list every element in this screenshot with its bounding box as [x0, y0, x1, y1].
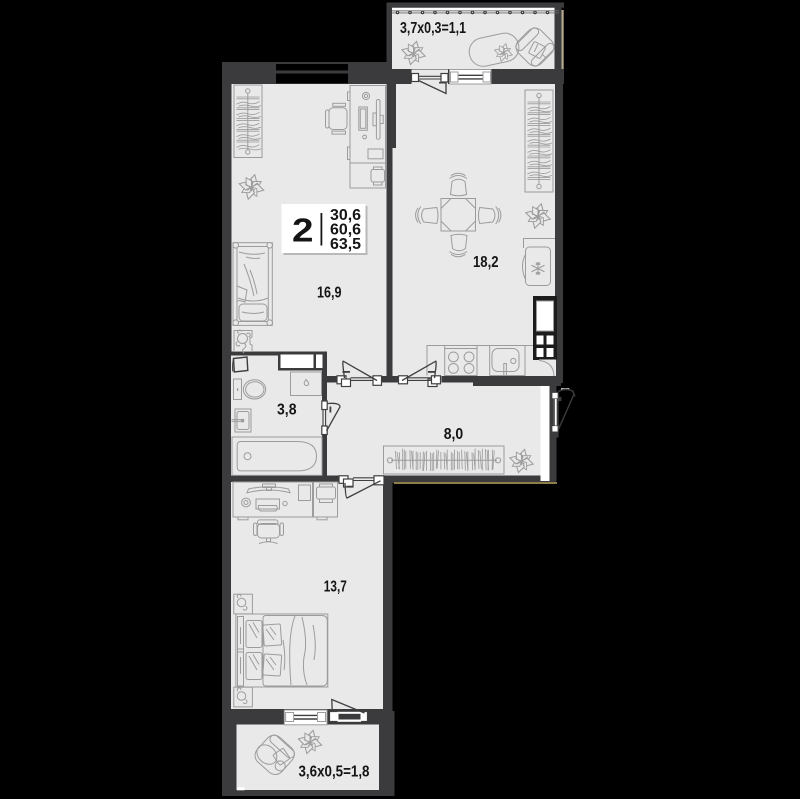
svg-text:63,5: 63,5 [330, 236, 361, 253]
svg-text:3,8: 3,8 [277, 402, 297, 419]
svg-text:18,2: 18,2 [473, 254, 499, 271]
svg-text:3,6x0,5=1,8: 3,6x0,5=1,8 [299, 764, 370, 781]
svg-text:16,9: 16,9 [317, 285, 342, 302]
svg-text:3,7x0,3=1,1: 3,7x0,3=1,1 [400, 20, 466, 37]
svg-text:13,7: 13,7 [324, 579, 347, 596]
svg-text:2: 2 [292, 212, 314, 249]
svg-text:8,0: 8,0 [444, 426, 464, 443]
